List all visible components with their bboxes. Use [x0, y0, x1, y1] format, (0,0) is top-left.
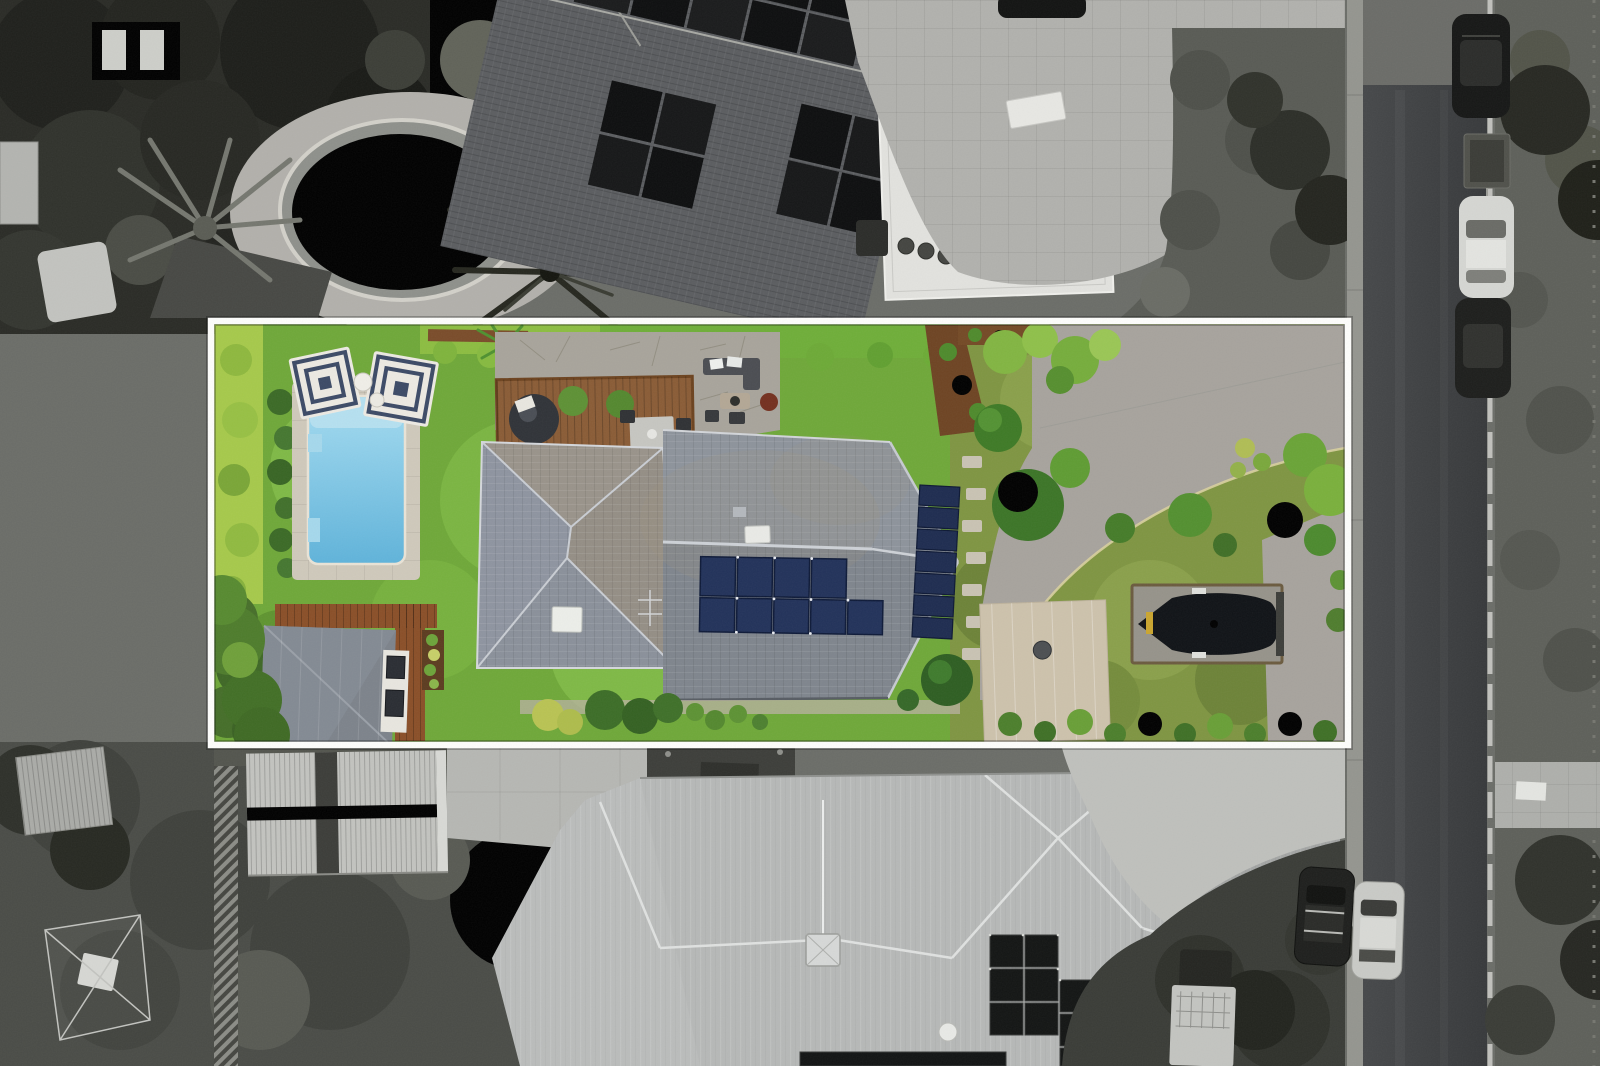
aerial-photo-canvas: Aerial drone photograph of a suburban pr… — [0, 0, 1600, 1066]
photo-grain — [0, 0, 1600, 1066]
aerial-photo: Aerial drone photograph of a suburban pr… — [0, 0, 1600, 1066]
